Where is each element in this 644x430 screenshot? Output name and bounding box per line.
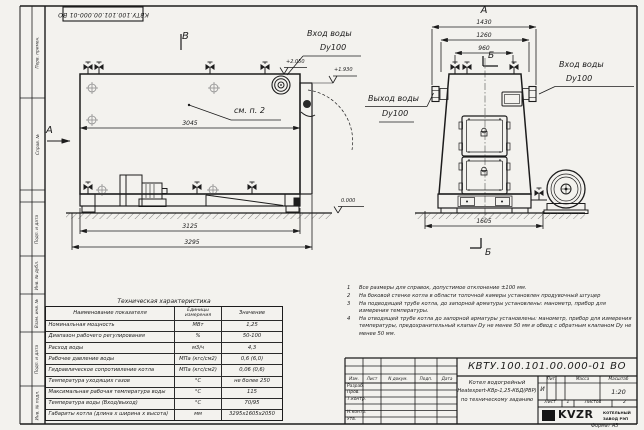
- row-units: м3/ч: [174, 343, 221, 353]
- margin-label: Перв. примен.: [36, 36, 41, 68]
- dim-front-mid-width: 1260: [476, 33, 491, 39]
- outlet-label: Выход воды: [368, 95, 419, 103]
- margin-label: Справ. №: [36, 134, 41, 155]
- row-value: 3295х1605х2050: [221, 410, 282, 420]
- note-1: 1 Все размеры для справок, допустимое от…: [347, 285, 635, 292]
- tech-table: Наименование показателя Единицы измерени…: [45, 306, 283, 421]
- elevation-ground: 0.000: [341, 199, 355, 204]
- view-b-label: В: [182, 32, 189, 42]
- kvzr-logo-icon: [542, 410, 555, 421]
- tb-sheet-label: Лист: [544, 401, 555, 405]
- table-row: Расход водым3/ч4,3: [46, 342, 282, 353]
- col-header-name: Наименование показателя: [46, 307, 174, 320]
- table-row: Габариты котла (длина х ширина х высота)…: [46, 409, 282, 420]
- margin-cell-inv-podl: Инв. № подл.: [31, 386, 45, 424]
- tb-name-line3: по техническому заданию: [461, 398, 533, 403]
- tb-row-razrab: Разраб.: [347, 385, 364, 389]
- table-row: Рабочее давление водыМПа (кгс/см2)0,6 (6…: [46, 353, 282, 364]
- dim-front-base-width: 1605: [476, 219, 491, 225]
- section-b-top-label: Б: [488, 52, 494, 61]
- row-name: Номинальная мощность: [46, 321, 174, 331]
- table-row: Номинальная мощностьМВт1,25: [46, 320, 282, 331]
- dim-side-flange-length: 3045: [182, 121, 197, 127]
- table-row: Максимальная рабочая температура воды°С1…: [46, 387, 282, 398]
- row-units: МПа (кгс/см2): [174, 354, 221, 364]
- row-value: 115: [221, 388, 282, 398]
- row-name: Расход воды: [46, 343, 174, 353]
- tb-col-podp: Подп.: [420, 377, 433, 381]
- margin-cell-vzam-inv: Взам. инв. №: [31, 294, 45, 332]
- note-text: На отводящей трубе котла до запорной арм…: [359, 316, 635, 338]
- dim-front-inner-width: 960: [478, 46, 489, 52]
- note-number: 1: [347, 285, 354, 292]
- tb-sheets-label: Листов: [585, 401, 601, 405]
- tb-scale-label: Масштаб: [609, 377, 629, 381]
- row-units: МПа (кгс/см2): [174, 365, 221, 375]
- row-name: Температура уходящих газов: [46, 377, 174, 387]
- format-label: Формат А3: [591, 425, 618, 430]
- section-b-bottom-label: Б: [485, 249, 491, 258]
- margin-cell-inv-dubl: Инв. № дубл.: [31, 256, 45, 294]
- tb-doc-number: КВТУ.100.101.00.000-01 ВО: [468, 362, 626, 372]
- note-number: 3: [347, 301, 354, 316]
- kvzr-logo-sub1: КОТЕЛЬНЫЙ: [603, 411, 631, 415]
- margin-label: Взам. инв. №: [36, 298, 41, 327]
- tech-table-header: Наименование показателя Единицы измерени…: [46, 307, 282, 320]
- inlet-dn-side: Dy100: [320, 44, 346, 52]
- table-row: Температура воды (Вход/выход)°С70/95: [46, 398, 282, 409]
- tb-lit-label: Лит.: [547, 377, 557, 381]
- dim-side-total-length: 3295: [184, 240, 199, 246]
- row-units: мм: [174, 410, 221, 420]
- row-units: МВт: [174, 321, 221, 331]
- margin-label: Инв. № дубл.: [36, 260, 41, 289]
- table-row: Диапазон рабочего регулирования%50-100: [46, 331, 282, 342]
- note-2: 2 На боковой стенке котла в области топо…: [347, 293, 635, 300]
- row-name: Габариты котла (длина х ширина х высота): [46, 410, 174, 420]
- margin-cell-sprav-no: Справ. №: [31, 98, 45, 190]
- inlet-label-front: Вход воды: [559, 61, 604, 69]
- tb-scale-value: 1:20: [611, 389, 626, 396]
- note-3: 3 На подводящей трубе котла, до запорной…: [347, 301, 635, 316]
- col-header-units: Единицы измерения: [174, 307, 221, 320]
- col-header-value: Значение: [221, 307, 282, 320]
- outlet-dn: Dy100: [382, 110, 408, 118]
- kvzr-logo-text: KVZR: [558, 409, 593, 420]
- view-a-label: А: [481, 6, 488, 16]
- front-view: [415, 58, 588, 222]
- tb-col-data: Дата: [442, 377, 453, 381]
- row-units: %: [174, 332, 221, 342]
- tb-col-doc: N докум.: [388, 377, 407, 381]
- row-value: 50-100: [221, 332, 282, 342]
- row-value: не более 250: [221, 377, 282, 387]
- tb-row-nkontr: Н.контр.: [347, 411, 367, 415]
- row-name: Диапазон рабочего регулирования: [46, 332, 174, 342]
- row-value: 4,3: [221, 343, 282, 353]
- tb-sheets-value: 2: [623, 401, 626, 406]
- row-units: °С: [174, 399, 221, 409]
- row-value: 70/95: [221, 399, 282, 409]
- margin-label: Подп. и дата: [36, 344, 41, 373]
- row-value: 0,6 (6,0): [221, 354, 282, 364]
- margin-cell-perv-primen: Перв. примен.: [31, 6, 45, 98]
- inlet-dn-front: Dy100: [566, 75, 592, 83]
- table-row: Гидравлическое сопротивление котлаМПа (к…: [46, 364, 282, 375]
- row-name: Гидравлическое сопротивление котла: [46, 365, 174, 375]
- margin-cell-podp-data-1: Подп. и дата: [31, 202, 45, 256]
- tb-name-line2: Heatexpert-КВр-1,25-КБД(РВР): [457, 389, 536, 394]
- note-text: Все размеры для справок, допустимое откл…: [359, 285, 526, 292]
- view-a-arrow-label: А: [46, 126, 53, 136]
- top-stamp-code: КВТУ.100.101.00.000-01 ВО: [58, 11, 149, 18]
- row-value: 0,06 (0,6): [221, 365, 282, 375]
- tb-lit-value: И: [540, 387, 545, 393]
- tech-table-title: Техническая характеристика: [117, 299, 210, 305]
- dim-side-base-length: 3125: [182, 224, 197, 230]
- row-units: °С: [174, 377, 221, 387]
- kvzr-logo-sub2: ЗАВОД РЭП: [603, 417, 628, 421]
- row-name: Рабочее давление воды: [46, 354, 174, 364]
- row-name: Температура воды (Вход/выход): [46, 399, 174, 409]
- note-number: 4: [347, 316, 354, 338]
- row-name: Максимальная рабочая температура воды: [46, 388, 174, 398]
- row-value: 1,25: [221, 321, 282, 331]
- top-stamp-box: КВТУ.100.101.00.000-01 ВО: [63, 7, 143, 21]
- drawing-sheet: Перв. примен. Справ. № Подп. и дата Инв.…: [0, 0, 644, 430]
- elevation-inlet: +2.050: [286, 60, 305, 65]
- tb-row-prov: Пров.: [347, 391, 360, 395]
- margin-cell-podp-data-2: Подп. и дата: [31, 332, 45, 386]
- tb-mass-label: Масса: [576, 377, 589, 381]
- note-text: На подводящей трубе котла, до запорной а…: [359, 301, 635, 316]
- tb-name-line1: Котел водогрейный: [469, 381, 526, 386]
- tb-col-izm: Изм.: [349, 377, 359, 381]
- see-note-label: см. п. 2: [234, 107, 265, 115]
- table-row: Температура уходящих газов°Сне более 250: [46, 376, 282, 387]
- row-units: °С: [174, 388, 221, 398]
- tb-col-list: Лист: [367, 377, 378, 381]
- note-number: 2: [347, 293, 354, 300]
- inlet-label-side: Вход воды: [307, 30, 352, 38]
- tb-row-tkontr: Т.контр.: [347, 398, 366, 402]
- margin-label: Инв. № подл.: [36, 390, 41, 420]
- note-text: На боковой стенке котла в области топочн…: [359, 293, 600, 300]
- margin-label: Подп. и дата: [36, 214, 41, 243]
- tb-row-utv: Утв.: [347, 418, 356, 422]
- note-4: 4 На отводящей трубе котла до запорной а…: [347, 316, 635, 338]
- tb-sheet-value: 1: [567, 401, 570, 406]
- side-view: [66, 62, 353, 219]
- elevation-top: +1.930: [334, 68, 353, 73]
- dim-front-total-width: 1430: [476, 20, 491, 26]
